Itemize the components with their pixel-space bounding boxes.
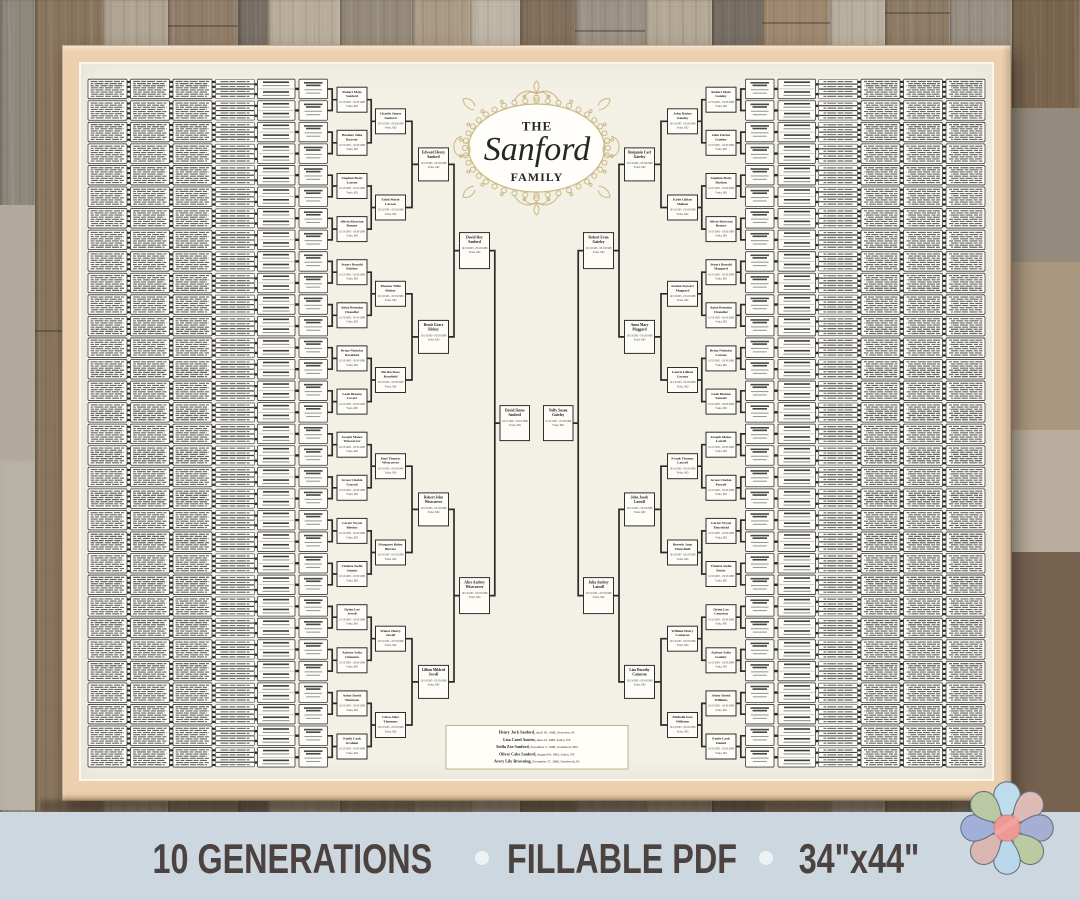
svg-text:Shelton: Shelton xyxy=(677,202,688,206)
svg-text:Gateley: Gateley xyxy=(592,240,604,244)
svg-text:10/13/1905 - 03/18/1988: 10/13/1905 - 03/18/1988 xyxy=(670,726,696,729)
svg-text:Yreka, MO: Yreka, MO xyxy=(634,339,646,342)
svg-text:10/13/1905 - 03/18/1988: 10/13/1905 - 03/18/1988 xyxy=(708,273,734,276)
svg-text:Yreka, MO: Yreka, MO xyxy=(385,385,397,388)
svg-text:Edward Henry: Edward Henry xyxy=(422,151,445,155)
svg-text:Gateley: Gateley xyxy=(634,155,646,159)
svg-text:Bessie Grace: Bessie Grace xyxy=(424,323,444,327)
svg-text:Gateley: Gateley xyxy=(715,94,727,98)
svg-text:Graham: Graham xyxy=(346,741,359,745)
svg-text:10/13/1905 - 03/18/1988: 10/13/1905 - 03/18/1988 xyxy=(421,507,447,510)
svg-text:Parcall: Parcall xyxy=(716,482,727,486)
svg-text:Anna Mary: Anna Mary xyxy=(631,323,649,327)
svg-text:Yreka, MO: Yreka, MO xyxy=(715,623,727,626)
svg-text:Yreka, MO: Yreka, MO xyxy=(715,752,727,755)
svg-text:10/13/1905 - 03/18/1988: 10/13/1905 - 03/18/1988 xyxy=(670,209,696,212)
svg-text:Thursfield: Thursfield xyxy=(713,525,729,529)
svg-text:Ritchey: Ritchey xyxy=(346,267,358,271)
svg-text:Yreka, MO: Yreka, MO xyxy=(385,472,397,475)
svg-text:Potter: Potter xyxy=(716,569,726,573)
svg-text:10/13/1905 - 03/18/1988: 10/13/1905 - 03/18/1988 xyxy=(339,575,365,578)
svg-text:10/13/1905 - 03/18/1988: 10/13/1905 - 03/18/1988 xyxy=(708,317,734,320)
svg-text:Yreka, MO: Yreka, MO xyxy=(346,579,358,582)
svg-text:Covert: Covert xyxy=(347,396,358,400)
svg-text:Yreka, MO: Yreka, MO xyxy=(346,105,358,108)
svg-text:Thursfield: Thursfield xyxy=(675,547,691,551)
svg-text:Corona: Corona xyxy=(715,353,726,357)
svg-text:Yreka, MO: Yreka, MO xyxy=(469,251,481,254)
svg-text:10/13/1905 - 03/18/1988: 10/13/1905 - 03/18/1988 xyxy=(708,230,734,233)
svg-text:10/13/1905 - 03/18/1988: 10/13/1905 - 03/18/1988 xyxy=(339,403,365,406)
svg-text:Yreka, MO: Yreka, MO xyxy=(677,299,689,302)
svg-text:Gateley: Gateley xyxy=(715,655,727,659)
svg-text:Timmons: Timmons xyxy=(345,698,360,702)
svg-text:Yreka, MO: Yreka, MO xyxy=(385,558,397,561)
svg-text:10/13/1905 - 03/18/1988: 10/13/1905 - 03/18/1988 xyxy=(339,705,365,708)
svg-text:Lisa Dorothy: Lisa Dorothy xyxy=(629,668,649,672)
svg-text:10/13/1905 - 03/18/1988: 10/13/1905 - 03/18/1988 xyxy=(670,123,696,126)
svg-text:10/13/1905 - 03/18/1988: 10/13/1905 - 03/18/1988 xyxy=(339,489,365,492)
svg-text:10/13/1905 - 03/18/1988: 10/13/1905 - 03/18/1988 xyxy=(670,295,696,298)
svg-text:10/13/1905 - 03/18/1988: 10/13/1905 - 03/18/1988 xyxy=(708,748,734,751)
svg-text:Yreka, MO: Yreka, MO xyxy=(677,127,689,130)
svg-text:Sanford: Sanford xyxy=(484,131,591,168)
svg-text:Yreka, MO: Yreka, MO xyxy=(715,666,727,669)
svg-text:Williams: Williams xyxy=(714,698,728,702)
svg-text:10/13/1905 - 03/18/1988: 10/13/1905 - 03/18/1988 xyxy=(708,403,734,406)
svg-text:10/13/1905 - 03/18/1988: 10/13/1905 - 03/18/1988 xyxy=(339,187,365,190)
svg-text:Latroll: Latroll xyxy=(634,500,645,504)
svg-text:Yreka, MO: Yreka, MO xyxy=(715,364,727,367)
svg-text:Yreka, MO: Yreka, MO xyxy=(346,623,358,626)
svg-text:Yreka, MO: Yreka, MO xyxy=(509,424,521,427)
svg-text:Lillian Mildred: Lillian Mildred xyxy=(422,668,446,672)
svg-text:Yreka, MO: Yreka, MO xyxy=(428,684,440,687)
svg-text:Wisecarver: Wisecarver xyxy=(466,585,484,589)
svg-text:Yreka, MO: Yreka, MO xyxy=(346,278,358,281)
svg-text:Yreka, MO: Yreka, MO xyxy=(677,385,689,388)
svg-text:Blevins: Blevins xyxy=(347,525,359,529)
svg-text:10/13/1905 - 03/18/1988: 10/13/1905 - 03/18/1988 xyxy=(378,381,404,384)
svg-text:Sanford: Sanford xyxy=(468,240,482,244)
svg-text:Yreka, MO: Yreka, MO xyxy=(715,536,727,539)
svg-text:Yreka, MO: Yreka, MO xyxy=(593,251,605,254)
svg-text:10/13/1905 - 03/18/1988: 10/13/1905 - 03/18/1988 xyxy=(339,532,365,535)
svg-text:Timmons: Timmons xyxy=(383,720,398,724)
svg-text:Yreka, MO: Yreka, MO xyxy=(552,424,564,427)
svg-text:Gateley: Gateley xyxy=(715,137,727,141)
svg-text:Chandler: Chandler xyxy=(714,310,729,314)
svg-text:Nelly Susan: Nelly Susan xyxy=(549,409,568,413)
svg-text:10/13/1905 - 03/18/1988: 10/13/1905 - 03/18/1988 xyxy=(670,381,696,384)
svg-text:Yreka, MO: Yreka, MO xyxy=(346,235,358,238)
svg-text:Yreka, MO: Yreka, MO xyxy=(715,278,727,281)
svg-text:Latroll: Latroll xyxy=(593,585,604,589)
svg-text:Chandler: Chandler xyxy=(345,310,360,314)
svg-text:Yreka, MO: Yreka, MO xyxy=(715,191,727,194)
svg-text:10/13/1905 - 03/18/1988: 10/13/1905 - 03/18/1988 xyxy=(670,640,696,643)
svg-text:10/13/1905 - 03/18/1988: 10/13/1905 - 03/18/1988 xyxy=(378,726,404,729)
svg-text:Yreka, MO: Yreka, MO xyxy=(346,450,358,453)
svg-text:Sanford: Sanford xyxy=(384,116,396,120)
svg-text:Staines: Staines xyxy=(347,569,358,573)
svg-text:Yreka, MO: Yreka, MO xyxy=(634,511,646,514)
svg-text:Yreka, MO: Yreka, MO xyxy=(428,166,440,169)
svg-text:10/13/1905 - 03/18/1988: 10/13/1905 - 03/18/1988 xyxy=(708,489,734,492)
svg-text:10/13/1905 - 03/18/1988: 10/13/1905 - 03/18/1988 xyxy=(627,162,653,165)
svg-text:10/13/1905 - 03/18/1988: 10/13/1905 - 03/18/1988 xyxy=(670,467,696,470)
svg-text:10/13/1905 - 03/18/1988: 10/13/1905 - 03/18/1988 xyxy=(378,295,404,298)
svg-text:Bonner: Bonner xyxy=(346,224,358,228)
svg-text:10/13/1905 - 03/18/1988: 10/13/1905 - 03/18/1988 xyxy=(708,575,734,578)
svg-text:Yreka, MO: Yreka, MO xyxy=(715,321,727,324)
svg-text:10/13/1905 - 03/18/1988: 10/13/1905 - 03/18/1988 xyxy=(708,662,734,665)
svg-text:David Simm: David Simm xyxy=(505,409,525,413)
svg-text:10/13/1905 - 03/18/1988: 10/13/1905 - 03/18/1988 xyxy=(378,209,404,212)
svg-text:Corona: Corona xyxy=(677,375,688,379)
svg-text:Bonser: Bonser xyxy=(716,224,727,228)
svg-text:Yreka, MO: Yreka, MO xyxy=(677,472,689,475)
svg-text:Jewell: Jewell xyxy=(347,612,356,616)
svg-text:10/13/1905 - 03/18/1988: 10/13/1905 - 03/18/1988 xyxy=(586,247,612,250)
svg-text:Yreka, MO: Yreka, MO xyxy=(677,213,689,216)
svg-text:Yreka, MO: Yreka, MO xyxy=(346,493,358,496)
svg-text:Yreka, MO: Yreka, MO xyxy=(677,558,689,561)
svg-text:Rosefield: Rosefield xyxy=(384,375,398,379)
svg-text:10/13/1905 - 03/18/1988: 10/13/1905 - 03/18/1988 xyxy=(421,334,447,337)
svg-text:10/13/1905 - 03/18/1988: 10/13/1905 - 03/18/1988 xyxy=(708,532,734,535)
svg-text:Rosefield: Rosefield xyxy=(345,353,359,357)
svg-text:10/13/1905 - 03/18/1988: 10/13/1905 - 03/18/1988 xyxy=(708,187,734,190)
svg-text:10/13/1905 - 03/18/1988: 10/13/1905 - 03/18/1988 xyxy=(586,592,612,595)
svg-text:10/13/1905 - 03/18/1988: 10/13/1905 - 03/18/1988 xyxy=(378,640,404,643)
svg-text:Larson: Larson xyxy=(385,202,396,206)
svg-text:10/13/1905 - 03/18/1988: 10/13/1905 - 03/18/1988 xyxy=(339,101,365,104)
svg-text:FAMILY: FAMILY xyxy=(511,170,564,184)
svg-text:10/13/1905 - 03/18/1988: 10/13/1905 - 03/18/1988 xyxy=(462,247,488,250)
svg-text:Yreka, MO: Yreka, MO xyxy=(634,684,646,687)
svg-text:Yreka, MO: Yreka, MO xyxy=(385,644,397,647)
svg-text:10/13/1905 - 03/18/1988: 10/13/1905 - 03/18/1988 xyxy=(339,446,365,449)
svg-text:Yreka, MO: Yreka, MO xyxy=(346,407,358,410)
svg-text:10/13/1905 - 03/18/1988: 10/13/1905 - 03/18/1988 xyxy=(502,420,528,423)
svg-text:Jewell: Jewell xyxy=(429,673,439,677)
svg-text:Cameron: Cameron xyxy=(632,673,646,677)
svg-text:10/13/1905 - 03/18/1988: 10/13/1905 - 03/18/1988 xyxy=(378,467,404,470)
svg-text:10/13/1905 - 03/18/1988: 10/13/1905 - 03/18/1988 xyxy=(670,554,696,557)
svg-text:Yreka, MO: Yreka, MO xyxy=(593,596,605,599)
svg-text:Yreka, MO: Yreka, MO xyxy=(346,536,358,539)
svg-text:David Roy: David Roy xyxy=(466,236,483,240)
svg-text:Latroll: Latroll xyxy=(716,439,726,443)
svg-text:10/13/1905 - 03/18/1988: 10/13/1905 - 03/18/1988 xyxy=(627,334,653,337)
svg-text:Yreka, MO: Yreka, MO xyxy=(346,191,358,194)
svg-text:Yreka, MO: Yreka, MO xyxy=(715,709,727,712)
svg-text:10/13/1905 - 03/18/1988: 10/13/1905 - 03/18/1988 xyxy=(421,679,447,682)
svg-text:10/13/1905 - 03/18/1988: 10/13/1905 - 03/18/1988 xyxy=(545,420,571,423)
svg-text:10/13/1905 - 03/18/1988: 10/13/1905 - 03/18/1988 xyxy=(339,748,365,751)
svg-text:Sanford: Sanford xyxy=(508,413,522,417)
svg-text:10/13/1905 - 03/18/1988: 10/13/1905 - 03/18/1988 xyxy=(627,679,653,682)
svg-text:Yreka, MO: Yreka, MO xyxy=(346,321,358,324)
svg-text:10/13/1905 - 03/18/1988: 10/13/1905 - 03/18/1988 xyxy=(708,144,734,147)
svg-text:John Jacob: John Jacob xyxy=(631,496,648,500)
svg-text:Gateley: Gateley xyxy=(677,116,689,120)
svg-text:10/13/1905 - 03/18/1988: 10/13/1905 - 03/18/1988 xyxy=(378,123,404,126)
svg-text:Julia Audrey: Julia Audrey xyxy=(588,581,608,585)
svg-text:10/13/1905 - 03/18/1988: 10/13/1905 - 03/18/1988 xyxy=(378,554,404,557)
svg-text:Yreka, MO: Yreka, MO xyxy=(385,299,397,302)
svg-text:10/13/1905 - 03/18/1988: 10/13/1905 - 03/18/1988 xyxy=(708,705,734,708)
svg-text:Yreka, MO: Yreka, MO xyxy=(346,364,358,367)
svg-text:Richey: Richey xyxy=(385,288,396,292)
svg-text:Yreka, MO: Yreka, MO xyxy=(634,166,646,169)
svg-text:Yreka, MO: Yreka, MO xyxy=(346,752,358,755)
svg-text:Maggard: Maggard xyxy=(676,288,690,292)
svg-text:10/13/1905 - 03/18/1988: 10/13/1905 - 03/18/1988 xyxy=(708,618,734,621)
svg-text:10/13/1905 - 03/18/1988: 10/13/1905 - 03/18/1988 xyxy=(708,101,734,104)
svg-text:Yreka, MO: Yreka, MO xyxy=(715,105,727,108)
svg-text:10/13/1905 - 03/18/1988: 10/13/1905 - 03/18/1988 xyxy=(421,162,447,165)
svg-text:Yreka, MO: Yreka, MO xyxy=(428,339,440,342)
svg-text:Yreka, MO: Yreka, MO xyxy=(677,730,689,733)
svg-text:Yreka, MO: Yreka, MO xyxy=(715,493,727,496)
svg-text:Wisecarver: Wisecarver xyxy=(382,461,399,465)
svg-text:Yreka, MO: Yreka, MO xyxy=(385,127,397,130)
svg-text:Yreka, MO: Yreka, MO xyxy=(346,709,358,712)
svg-text:10/13/1905 - 03/18/1988: 10/13/1905 - 03/18/1988 xyxy=(339,360,365,363)
svg-text:Gateley: Gateley xyxy=(552,413,564,417)
svg-text:10/13/1905 - 03/18/1988: 10/13/1905 - 03/18/1988 xyxy=(339,317,365,320)
svg-text:Richey: Richey xyxy=(428,328,439,332)
svg-text:10/13/1905 - 03/18/1988: 10/13/1905 - 03/18/1988 xyxy=(339,618,365,621)
svg-text:Yreka, MO: Yreka, MO xyxy=(385,213,397,216)
svg-text:Blevins: Blevins xyxy=(385,547,397,551)
svg-text:Larson: Larson xyxy=(347,181,358,185)
svg-text:Yreka, MO: Yreka, MO xyxy=(346,148,358,151)
svg-text:Maggard: Maggard xyxy=(632,328,646,332)
svg-text:Robert John: Robert John xyxy=(424,496,443,500)
svg-text:Yreka, MO: Yreka, MO xyxy=(677,644,689,647)
svg-text:Yreka, MO: Yreka, MO xyxy=(715,148,727,151)
svg-text:Benjamin Carl: Benjamin Carl xyxy=(628,151,651,155)
svg-text:Royster: Royster xyxy=(346,137,358,141)
svg-text:10/13/1905 - 03/18/1988: 10/13/1905 - 03/18/1988 xyxy=(339,144,365,147)
svg-text:Yreka, MO: Yreka, MO xyxy=(346,666,358,669)
svg-text:Sancoff: Sancoff xyxy=(715,396,727,400)
svg-text:Alice Audrey: Alice Audrey xyxy=(464,581,485,585)
svg-text:Yreka, MO: Yreka, MO xyxy=(715,407,727,410)
svg-text:Clements: Clements xyxy=(345,655,360,659)
svg-text:Wisecarver: Wisecarver xyxy=(425,500,443,504)
svg-text:Yreka, MO: Yreka, MO xyxy=(428,511,440,514)
svg-text:10/13/1905 - 03/18/1988: 10/13/1905 - 03/18/1988 xyxy=(708,446,734,449)
svg-text:Robert Evan: Robert Evan xyxy=(588,236,608,240)
svg-text:Latroll: Latroll xyxy=(677,461,687,465)
svg-text:Daniel: Daniel xyxy=(716,741,726,745)
svg-text:Garrod: Garrod xyxy=(346,482,357,486)
svg-text:Jewell: Jewell xyxy=(386,633,395,637)
svg-text:Yreka, MO: Yreka, MO xyxy=(715,579,727,582)
svg-text:10/13/1905 - 03/18/1988: 10/13/1905 - 03/18/1988 xyxy=(462,592,488,595)
svg-text:10/13/1905 - 03/18/1988: 10/13/1905 - 03/18/1988 xyxy=(708,360,734,363)
svg-text:Yreka, MO: Yreka, MO xyxy=(715,235,727,238)
svg-text:Sanford: Sanford xyxy=(427,155,439,159)
svg-text:Yreka, MO: Yreka, MO xyxy=(715,450,727,453)
svg-text:Wisecarver: Wisecarver xyxy=(343,439,360,443)
svg-text:Yreka, MO: Yreka, MO xyxy=(469,596,481,599)
svg-text:10/13/1905 - 03/18/1988: 10/13/1905 - 03/18/1988 xyxy=(339,662,365,665)
svg-text:Yreka, MO: Yreka, MO xyxy=(385,730,397,733)
svg-text:Sanford: Sanford xyxy=(346,94,358,98)
svg-text:10/13/1905 - 03/18/1988: 10/13/1905 - 03/18/1988 xyxy=(627,507,653,510)
svg-text:Cameron: Cameron xyxy=(676,633,690,637)
svg-text:10/13/1905 - 03/18/1988: 10/13/1905 - 03/18/1988 xyxy=(339,230,365,233)
svg-text:Williams: Williams xyxy=(676,720,690,724)
svg-text:10/13/1905 - 03/18/1988: 10/13/1905 - 03/18/1988 xyxy=(339,273,365,276)
svg-text:Shelton: Shelton xyxy=(715,181,726,185)
svg-text:Maggard: Maggard xyxy=(714,267,728,271)
svg-text:Cameron: Cameron xyxy=(714,612,728,616)
